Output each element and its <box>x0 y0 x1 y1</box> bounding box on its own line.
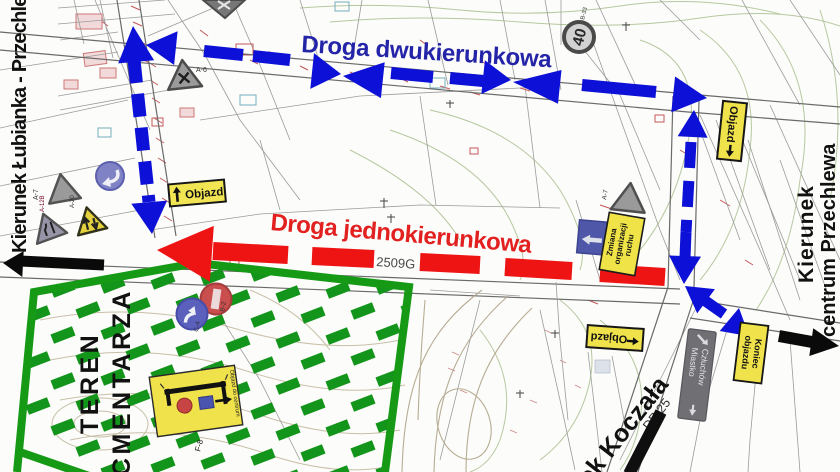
svg-text:Objazd: Objazd <box>590 330 627 345</box>
svg-text:Kierunek Łubianka - Przechlewo: Kierunek Łubianka - Przechlewo <box>9 0 31 253</box>
svg-text:A-12B: A-12B <box>40 195 46 212</box>
svg-text:Kierunek: Kierunek <box>795 185 818 283</box>
svg-text:2509G: 2509G <box>376 254 416 272</box>
svg-text:A-7: A-7 <box>33 189 40 200</box>
svg-text:A-6: A-6 <box>196 67 207 74</box>
svg-text:A-20: A-20 <box>70 195 76 208</box>
svg-text:TEREN: TEREN <box>76 332 104 434</box>
svg-text:centrum Przechlewa: centrum Przechlewa <box>818 143 840 337</box>
svg-text:CMENTARZA: CMENTARZA <box>108 288 136 472</box>
